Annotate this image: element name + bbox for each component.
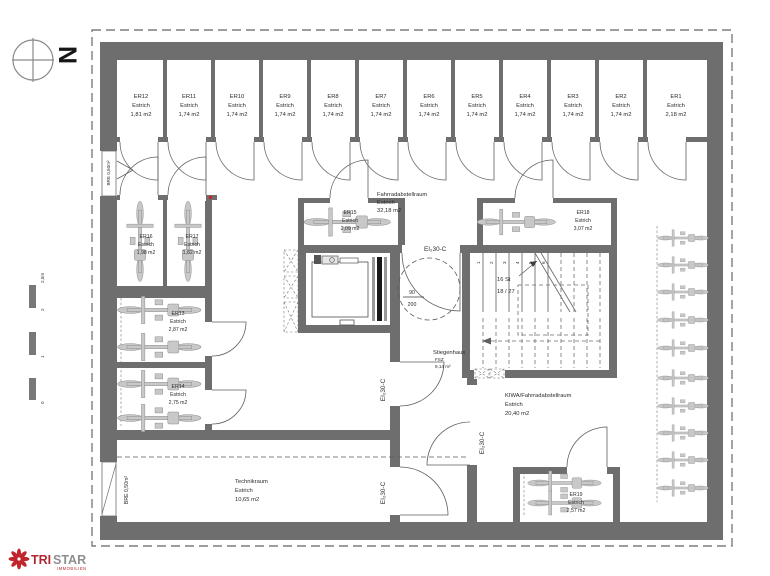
elevator <box>306 253 390 325</box>
room-material: Estrich <box>568 500 584 506</box>
room-id: ER10 <box>230 94 245 100</box>
room-id: ER8 <box>327 94 338 100</box>
room-id: ER3 <box>567 94 578 100</box>
room-material: Estrich <box>420 103 438 109</box>
room-area: 1,74 m2 <box>371 112 392 118</box>
scale-label-0: 0 <box>40 401 45 404</box>
room-material: Estrich <box>138 242 154 248</box>
stair-ratio-label: 18 / 27 <box>497 289 515 295</box>
room-area: 1,74 m2 <box>179 112 200 118</box>
stair-annotations: 16 St 18 / 27 1 2 3 4 5 6 <box>476 261 546 295</box>
area-name: Technikraum <box>235 479 268 485</box>
area-size: 20,40 m2 <box>505 411 529 417</box>
room-id: ER13 <box>172 311 185 317</box>
room-id: ER12 <box>134 94 149 100</box>
room-id: ER16 <box>140 234 153 240</box>
door-openings <box>120 136 686 475</box>
fire-rating-label: EI₂30-C <box>380 481 387 504</box>
room-area: 1,82 m2 <box>183 250 202 256</box>
room-area: 1,74 m2 <box>323 112 344 118</box>
room-id: ER7 <box>375 94 386 100</box>
room-area: 1,74 m2 <box>275 112 296 118</box>
area-material: Estrich <box>505 402 523 408</box>
logo-brand-secondary: STAR <box>53 553 86 567</box>
stairwell-label: Stiegenhaus FSZ 9,14 m² <box>433 350 465 369</box>
room-id: ER1 <box>670 94 681 100</box>
lift-dimension: 90 200 <box>403 290 424 308</box>
room-area: 2,87 m2 <box>169 327 188 333</box>
bre-shaft-bottom <box>102 462 116 516</box>
fire-rating-label: EI₂30-C <box>479 431 486 454</box>
room-material: Estrich <box>170 392 186 398</box>
area-size: 10,65 m2 <box>235 497 259 503</box>
floor-plan-page: 90 200 ER12Estrich1,81 m2 ER11Estrich1,7… <box>0 0 770 576</box>
room-material: Estrich <box>184 242 200 248</box>
area-name: Fahrradabstellraum <box>377 192 427 198</box>
room-id: ER18 <box>577 210 590 216</box>
room-id: ER11 <box>182 94 196 100</box>
room-id: ER5 <box>471 94 482 100</box>
room-id: ER19 <box>570 492 583 498</box>
marker-dot <box>209 196 212 199</box>
room-area: 2,57 m2 <box>567 508 586 514</box>
area-material: Estrich <box>377 200 395 206</box>
room-area: 1,74 m2 <box>227 112 248 118</box>
step-number: 2 <box>489 261 494 264</box>
step-number: 4 <box>515 261 520 264</box>
area-code: FSZ <box>435 357 444 362</box>
area-material: Estrich <box>235 488 253 494</box>
room-area: 2,75 m2 <box>169 400 188 406</box>
north-label: N <box>53 46 81 64</box>
room-area: 1,74 m2 <box>515 112 536 118</box>
scale-label-2: 2 <box>40 308 45 311</box>
lift-sill <box>340 320 354 325</box>
scale-bar: 2,5m 2 1 0 <box>29 273 45 404</box>
area-name: Stiegenhaus <box>433 350 465 356</box>
logo-brand-primary: TRI <box>31 553 51 567</box>
stair-direction-arrowhead <box>482 338 491 345</box>
room-id: ER17 <box>186 234 199 240</box>
room-material: Estrich <box>564 103 582 109</box>
room-area: 3,07 m2 <box>574 226 593 232</box>
room-material: Estrich <box>468 103 486 109</box>
room-material: Estrich <box>516 103 534 109</box>
room-material: Estrich <box>612 103 630 109</box>
room-area: 1,74 m2 <box>419 112 440 118</box>
fire-rating-label: EI₂30-C <box>424 246 447 253</box>
room-id: ER2 <box>615 94 626 100</box>
bre-label-top: BRE 0,50m² <box>106 160 111 185</box>
logo-tagline: IMMOBILIEN <box>57 566 87 571</box>
area-size: 9,14 m² <box>435 364 451 369</box>
north-arrow-icon: N <box>12 38 81 82</box>
step-number: 3 <box>502 261 507 264</box>
step-number: 5 <box>528 261 533 264</box>
floor-plan-drawing: 90 200 ER12Estrich1,81 m2 ER11Estrich1,7… <box>0 0 770 576</box>
bre-label-bottom: BRE 0,50m² <box>124 476 130 505</box>
step-number: 1 <box>476 261 481 264</box>
room-material: Estrich <box>276 103 294 109</box>
area-name: KIWA/Fahrradabstellraum <box>505 393 572 399</box>
area-size: 32,18 m2 <box>377 208 401 214</box>
room-id: ER14 <box>172 384 185 390</box>
room-area: 1,74 m2 <box>563 112 584 118</box>
room-material: Estrich <box>342 218 358 224</box>
room-material: Estrich <box>667 103 685 109</box>
room-id: ER6 <box>423 94 434 100</box>
room-area: 1,98 m2 <box>137 250 156 256</box>
room-area: 1,74 m2 <box>611 112 632 118</box>
room-material: Estrich <box>228 103 246 109</box>
lift-width-label: 90 <box>409 290 415 296</box>
room-area: 2,18 m2 <box>666 112 687 118</box>
room-id: ER15 <box>344 210 357 216</box>
technik-room-label: Technikraum Estrich 10,65 m2 <box>235 479 268 503</box>
logo: TRI STAR IMMOBILIEN <box>9 549 87 572</box>
room-area: 1,81 m2 <box>131 112 152 118</box>
room-material: Estrich <box>132 103 150 109</box>
stairs <box>482 253 600 368</box>
scale-label-25: 2,5m <box>40 273 45 283</box>
kiwa-room-label: KIWA/Fahrradabstellraum Estrich 20,40 m2 <box>505 393 572 417</box>
room-material: Estrich <box>575 218 591 224</box>
lift-depth-label: 200 <box>408 302 417 308</box>
room-area: 1,74 m2 <box>467 112 488 118</box>
room-id: ER4 <box>519 94 531 100</box>
room-material: Estrich <box>372 103 390 109</box>
logo-star-icon <box>9 549 30 570</box>
fire-rating-label: EI₂30-C <box>380 378 387 401</box>
stair-count-label: 16 St <box>497 277 511 283</box>
step-number: 6 <box>541 261 546 264</box>
scale-label-1: 1 <box>40 355 45 358</box>
room-material: Estrich <box>180 103 198 109</box>
room-id: ER9 <box>279 94 290 100</box>
room-area: 2,09 m2 <box>341 226 360 232</box>
room-material: Estrich <box>324 103 342 109</box>
room-material: Estrich <box>170 319 186 325</box>
